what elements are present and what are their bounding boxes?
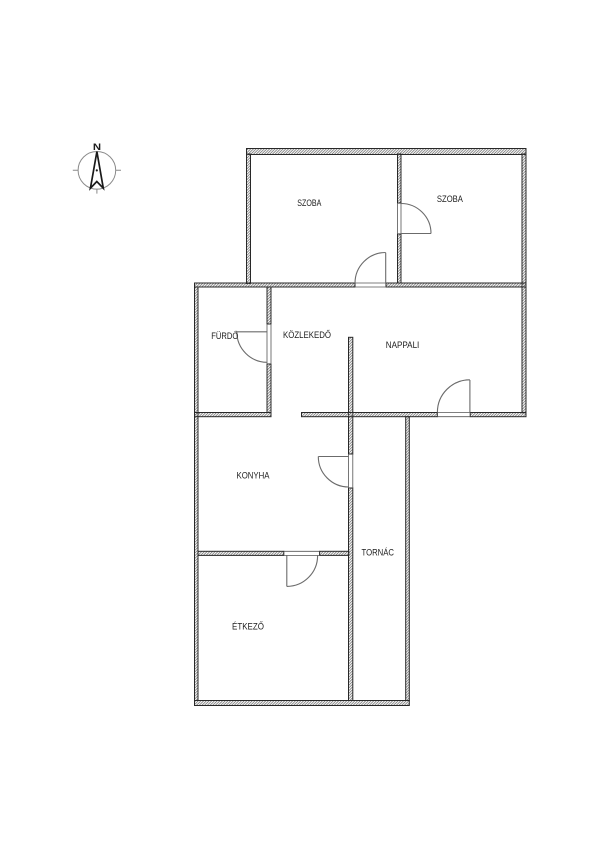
svg-text:KONYHA: KONYHA xyxy=(237,470,271,481)
svg-text:NAPPALI: NAPPALI xyxy=(386,339,420,350)
svg-text:KÖZLEKEDŐ: KÖZLEKEDŐ xyxy=(283,329,331,340)
svg-text:SZOBA: SZOBA xyxy=(297,197,322,208)
svg-text:ÉTKEZŐ: ÉTKEZŐ xyxy=(232,621,264,632)
svg-text:FÜRDŐ: FÜRDŐ xyxy=(211,330,238,341)
svg-text:TORNÁC: TORNÁC xyxy=(362,547,395,558)
svg-text:SZOBA: SZOBA xyxy=(437,193,464,204)
svg-text:N: N xyxy=(93,142,102,152)
